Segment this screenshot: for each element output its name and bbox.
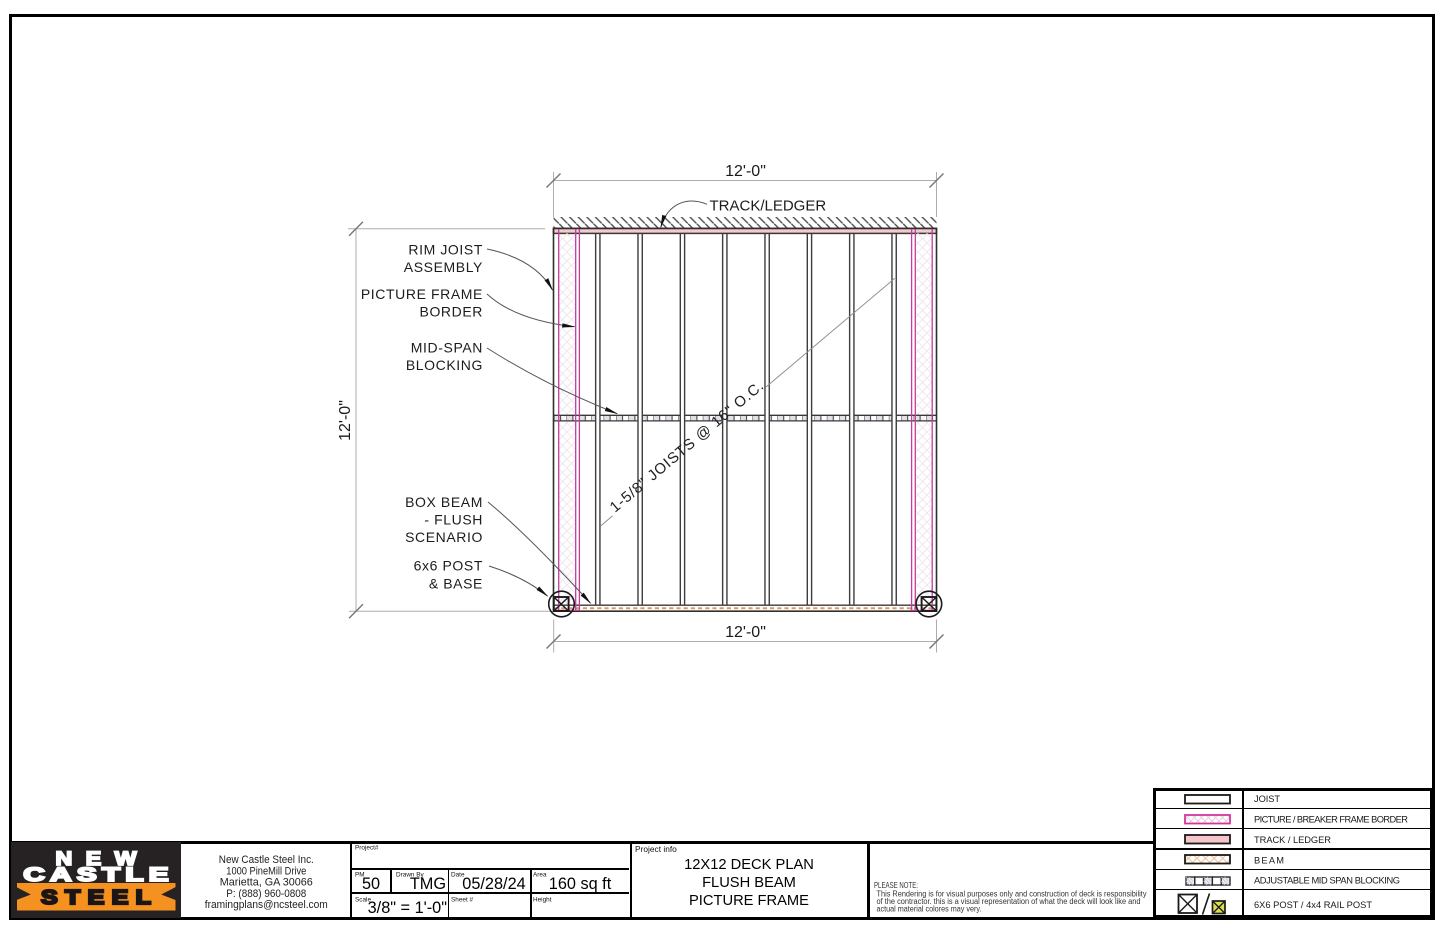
svg-text:ASSEMBLY: ASSEMBLY bbox=[404, 259, 483, 275]
svg-text:BEAM: BEAM bbox=[1254, 855, 1284, 865]
svg-text:BORDER: BORDER bbox=[420, 304, 484, 320]
svg-text:RIM JOIST: RIM JOIST bbox=[408, 241, 483, 257]
svg-text:TRACK / LEDGER: TRACK / LEDGER bbox=[1254, 835, 1331, 845]
svg-text:1000 PineMill Drive: 1000 PineMill Drive bbox=[226, 865, 306, 877]
svg-text:ADJUSTABLE MID SPAN BLOCKING: ADJUSTABLE MID SPAN BLOCKING bbox=[1254, 875, 1400, 885]
svg-text:JOIST: JOIST bbox=[1254, 794, 1280, 804]
svg-text:P: (888) 960-0808: P: (888) 960-0808 bbox=[226, 888, 306, 900]
svg-text:12'-0": 12'-0" bbox=[725, 163, 766, 180]
svg-text:TRACK/LEDGER: TRACK/LEDGER bbox=[710, 198, 827, 215]
svg-text:New Castle Steel Inc.: New Castle Steel Inc. bbox=[219, 854, 314, 866]
svg-text:PICTURE FRAME: PICTURE FRAME bbox=[361, 286, 483, 302]
svg-text:framingplans@ncsteel.com: framingplans@ncsteel.com bbox=[205, 899, 328, 911]
svg-text:BOX BEAM: BOX BEAM bbox=[405, 494, 483, 510]
svg-text:12'-0": 12'-0" bbox=[337, 400, 354, 441]
svg-text:MID-SPAN: MID-SPAN bbox=[411, 340, 483, 356]
svg-text:6x6 POST: 6x6 POST bbox=[414, 558, 483, 574]
svg-text:6X6 POST / 4x4 RAIL POST: 6X6 POST / 4x4 RAIL POST bbox=[1254, 900, 1372, 910]
svg-text:12'-0": 12'-0" bbox=[725, 624, 766, 641]
svg-text:actual material colores may ve: actual material colores may very. bbox=[876, 904, 981, 913]
svg-text:PICTURE / BREAKER FRAME BORDER: PICTURE / BREAKER FRAME BORDER bbox=[1254, 814, 1408, 824]
svg-text:& BASE: & BASE bbox=[429, 575, 483, 591]
svg-text:1-5/8" JOISTS @ 16" O.C.: 1-5/8" JOISTS @ 16" O.C. bbox=[607, 377, 768, 516]
svg-text:Marietta, GA 30066: Marietta, GA 30066 bbox=[220, 877, 313, 889]
svg-text:- FLUSH: - FLUSH bbox=[424, 512, 483, 528]
svg-text:BLOCKING: BLOCKING bbox=[406, 357, 483, 373]
svg-text:SCENARIO: SCENARIO bbox=[405, 529, 483, 545]
